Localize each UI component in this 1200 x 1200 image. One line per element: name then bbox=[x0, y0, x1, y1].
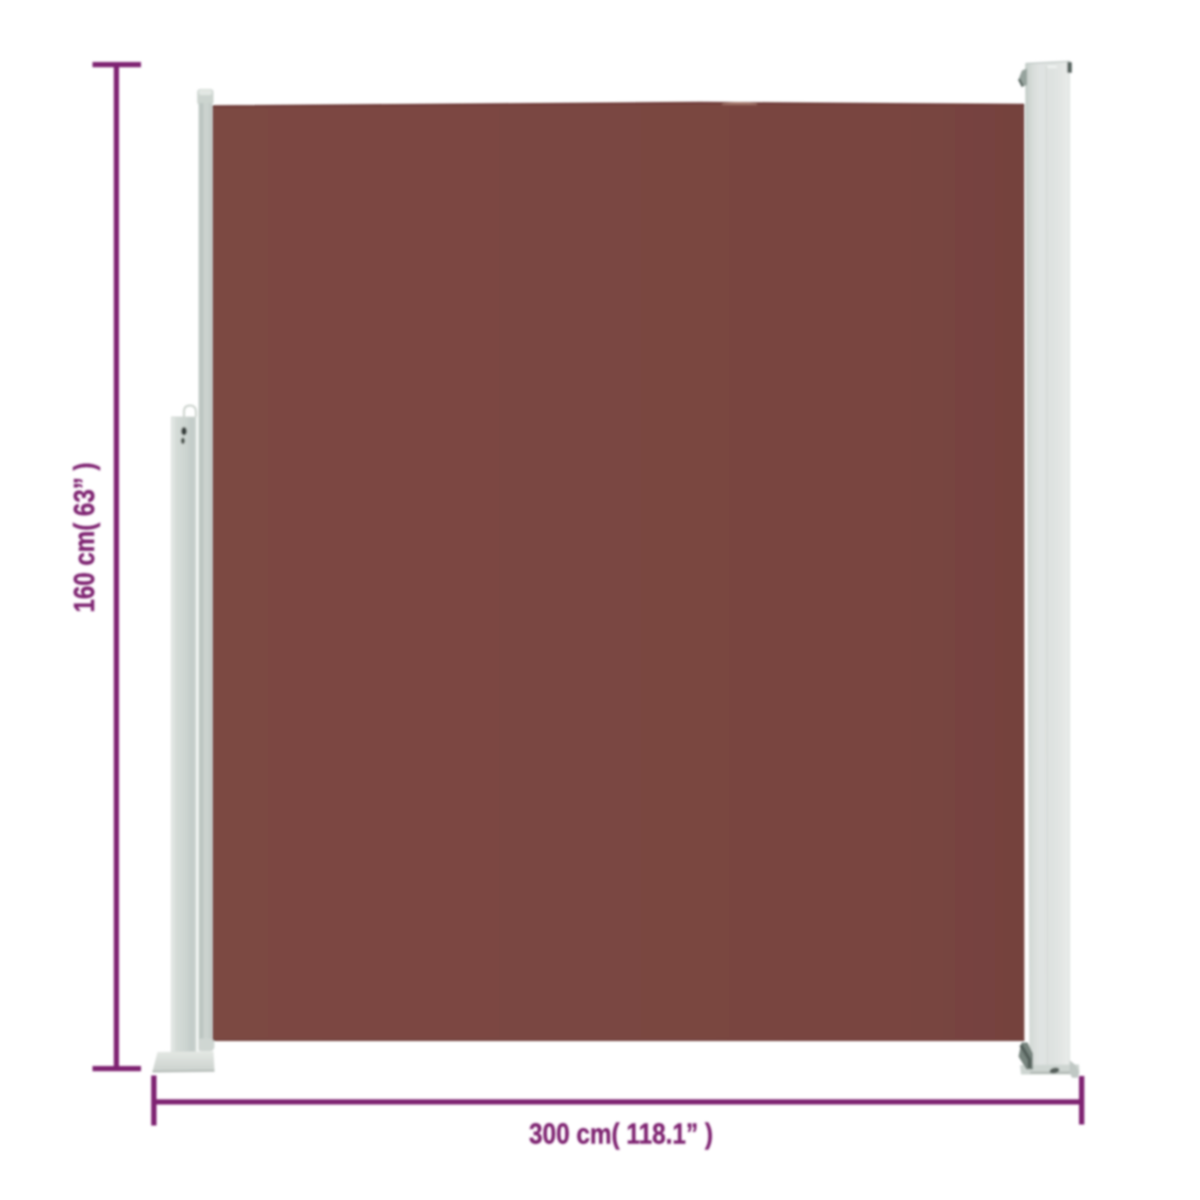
svg-text:160 cm( 63” ): 160 cm( 63” ) bbox=[69, 463, 101, 613]
svg-text:300 cm( 118.1” ): 300 cm( 118.1” ) bbox=[529, 1119, 713, 1151]
